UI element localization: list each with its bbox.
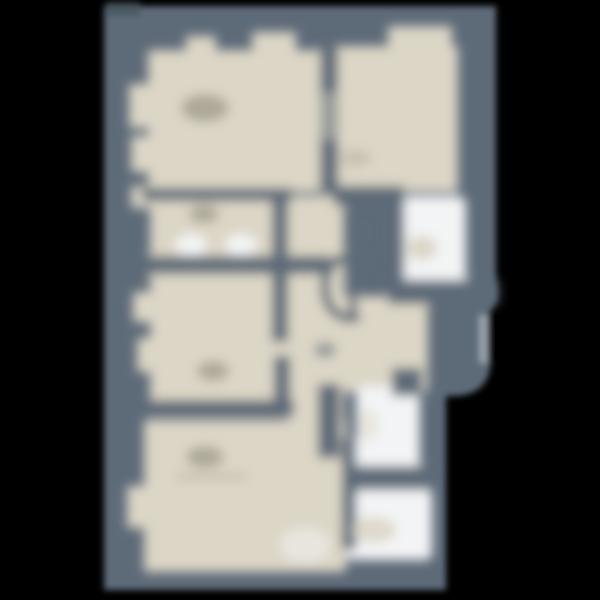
wall-bathroom2-bathroom3	[344, 466, 430, 490]
window-notch-left-6	[127, 486, 145, 528]
top-left-wall-shadow	[106, 2, 140, 16]
wall-bathroom1-left	[386, 196, 404, 288]
room-left-3-floor	[150, 274, 292, 402]
bathroom3-fixture	[352, 517, 396, 543]
wall-corridor-left-upper	[272, 194, 288, 342]
wall-hall-middle	[318, 384, 340, 458]
bathroom1-fixture	[407, 236, 437, 260]
door-swing-2	[225, 234, 257, 256]
door-swing-1	[175, 234, 207, 256]
room2-label-smudge	[189, 205, 219, 223]
floorplan-canvas	[0, 0, 600, 600]
window-notch-top-right	[388, 26, 452, 50]
door-gap-top-middle	[320, 92, 338, 140]
window-notch-left-2	[131, 136, 153, 172]
blurred-floorplan-screenshot	[0, 0, 600, 600]
room-right-label-smudge	[341, 150, 371, 166]
wall-room1-room2	[142, 188, 292, 201]
room3-label-smudge	[197, 361, 229, 381]
window-notch-left-5	[137, 338, 153, 372]
wall-room3-room4	[150, 400, 294, 416]
room-top-right-floor	[338, 46, 458, 192]
room4-label-smudge	[186, 446, 224, 468]
room-top-left-floor	[148, 50, 322, 192]
wall-room2-room3	[131, 256, 331, 274]
room1-label-smudge	[181, 94, 229, 122]
window-notch-top-1	[186, 36, 216, 58]
light-patch-room4	[279, 527, 331, 563]
wall-corridor-left-lower	[274, 356, 290, 416]
window-notch-left-4	[133, 292, 151, 322]
window-notch-top-2	[252, 32, 296, 58]
wall-above-bathroom2	[392, 368, 422, 396]
room-left-2-floor	[150, 200, 290, 260]
window-notch-left-1	[129, 84, 153, 128]
room4-underline-smudge	[176, 474, 246, 479]
hall-label-smudge	[314, 342, 336, 358]
balcony-edge-highlight	[479, 315, 488, 363]
balcony-edge-slit	[488, 312, 493, 362]
wall-below-bathroom1	[388, 280, 498, 304]
bathroom2-fixture	[358, 409, 378, 441]
